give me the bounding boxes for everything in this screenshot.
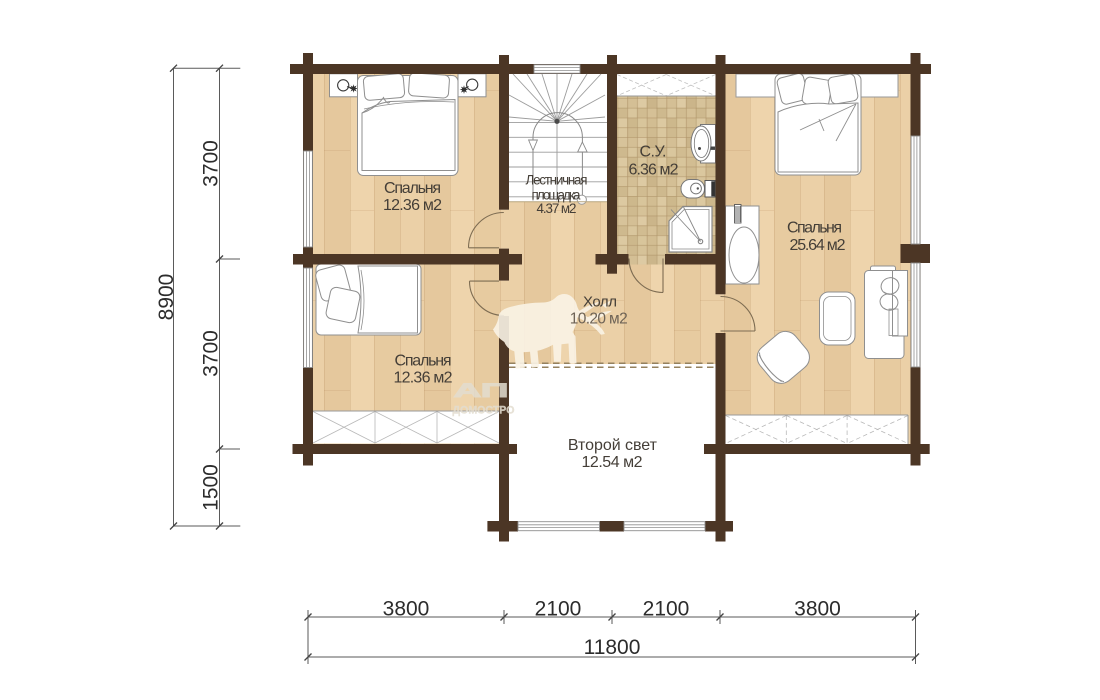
svg-text:3800: 3800 (383, 598, 430, 621)
svg-text:ДОМОСТРО: ДОМОСТРО (453, 405, 515, 417)
svg-text:12.36 м2: 12.36 м2 (394, 370, 453, 387)
svg-text:12.54 м2: 12.54 м2 (582, 454, 643, 471)
svg-text:3700: 3700 (200, 330, 223, 377)
svg-text:Спальня: Спальня (384, 180, 441, 197)
svg-text:3700: 3700 (200, 140, 223, 187)
svg-text:Спальня: Спальня (787, 220, 842, 237)
svg-text:С.У.: С.У. (640, 144, 667, 161)
svg-text:Второй свет: Второй свет (568, 437, 658, 454)
svg-text:Лестничная: Лестничная (526, 173, 588, 188)
svg-text:10.20 м2: 10.20 м2 (570, 311, 628, 328)
svg-text:АП: АП (454, 380, 509, 402)
svg-text:6.36 м2: 6.36 м2 (629, 162, 679, 179)
svg-text:2100: 2100 (643, 598, 690, 621)
svg-text:2100: 2100 (535, 598, 582, 621)
svg-text:11800: 11800 (584, 636, 641, 659)
svg-text:3800: 3800 (794, 598, 841, 621)
svg-text:12.36 м2: 12.36 м2 (383, 197, 442, 214)
svg-text:8900: 8900 (155, 274, 178, 321)
svg-text:Спальня: Спальня (395, 353, 452, 370)
svg-text:25.64 м2: 25.64 м2 (790, 237, 846, 254)
svg-text:Холл: Холл (583, 294, 617, 311)
svg-text:4.37 м2: 4.37 м2 (537, 201, 577, 216)
svg-text:1500: 1500 (200, 464, 223, 511)
